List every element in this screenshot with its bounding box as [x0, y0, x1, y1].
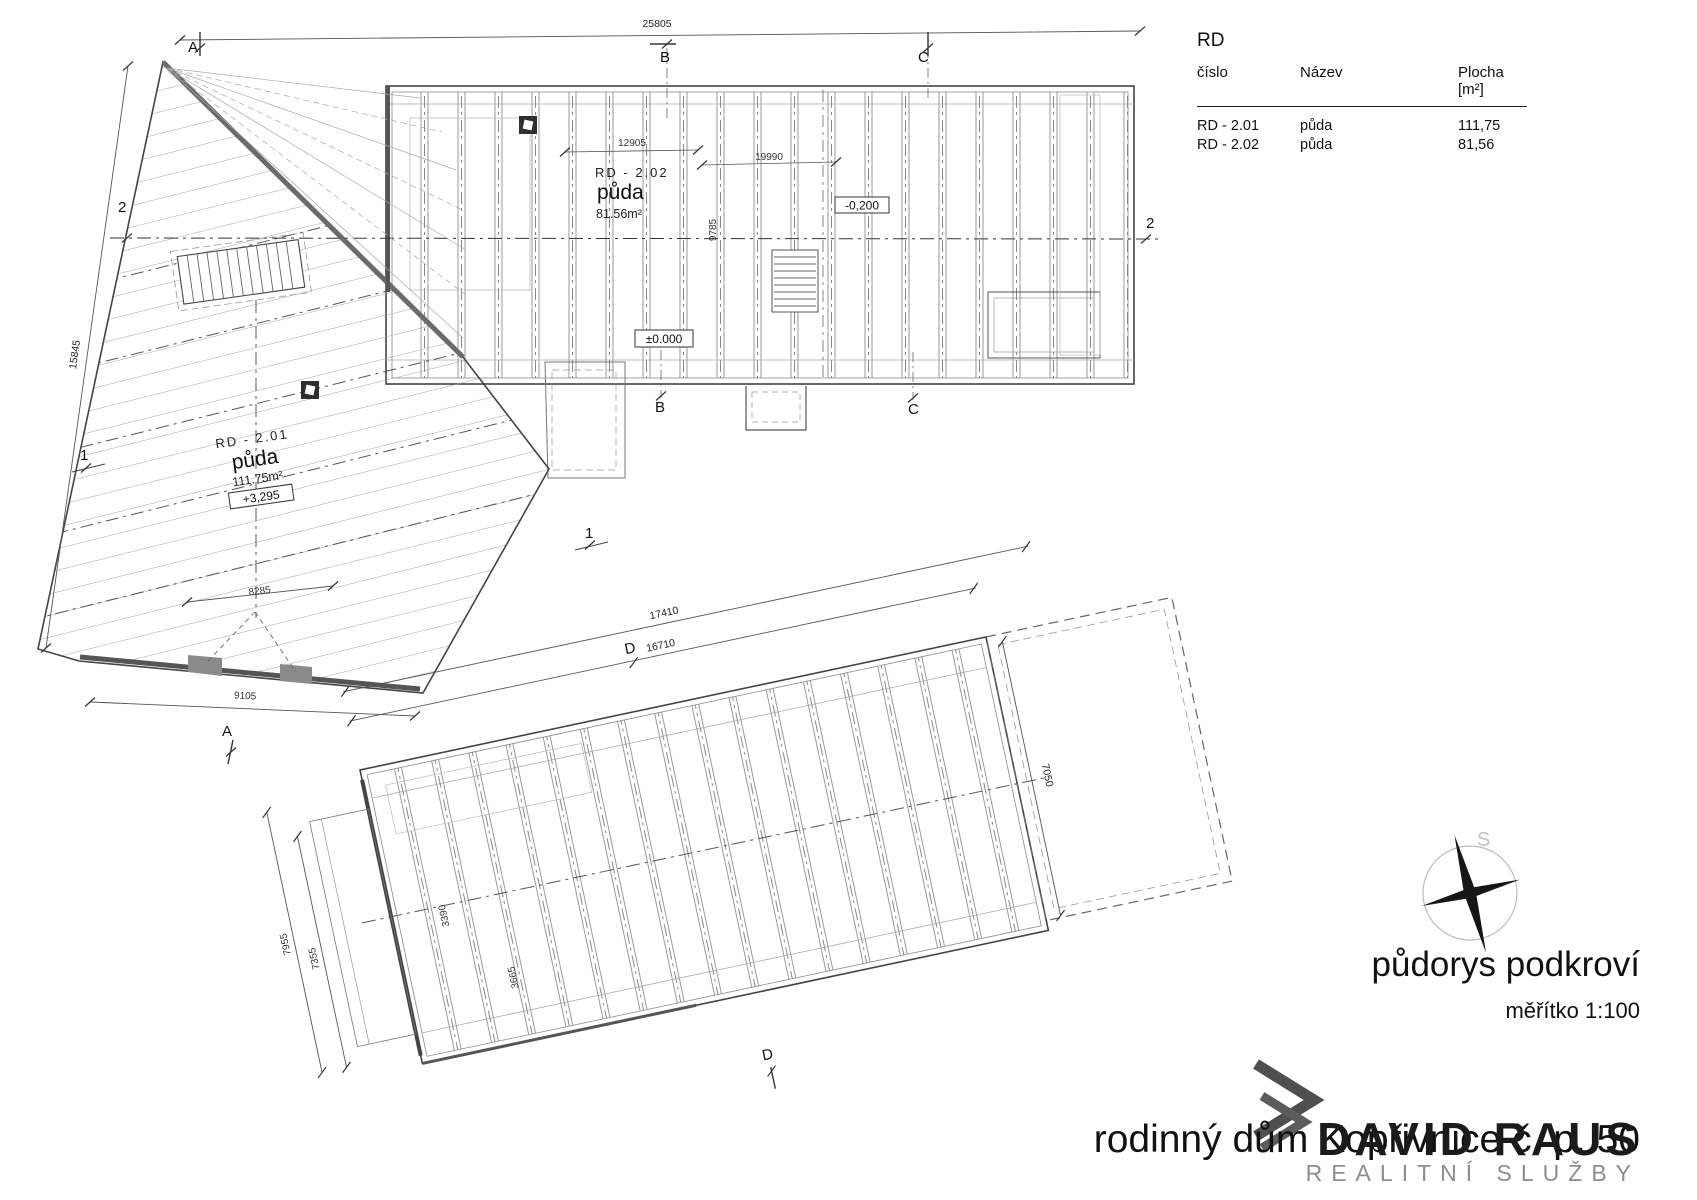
- section-marker-1-left: 1: [80, 447, 88, 464]
- connector-outline: [545, 362, 625, 478]
- section-marker-2-right: 2: [1146, 215, 1154, 232]
- legend-divider: [1197, 106, 1527, 107]
- section-marker-a-top: A: [188, 39, 198, 56]
- svg-text:81.56m²: 81.56m²: [596, 207, 642, 221]
- section-marker-b-bottom: B: [655, 399, 665, 416]
- dim-label-9785: 9785: [708, 218, 719, 241]
- row-plocha: 81,56: [1458, 136, 1527, 155]
- compass-north-label: S: [1477, 829, 1490, 851]
- col-header-plocha: Plocha [m²]: [1458, 64, 1527, 98]
- bay-outline: [746, 386, 806, 430]
- dim-label-7955: 7955: [278, 932, 293, 956]
- section-marker-d-bottom: D: [761, 1046, 775, 1065]
- dim-label-16710: 16710: [645, 637, 676, 655]
- chimney-icon: [519, 116, 537, 134]
- svg-text:-0,200: -0,200: [845, 199, 879, 213]
- drawing-scale: měřítko 1:100: [1505, 998, 1640, 1024]
- chimney-icon: [301, 381, 319, 399]
- dormer-block: [188, 655, 222, 676]
- section-marker-c-bottom: C: [908, 401, 919, 418]
- level-label-zero: ±0.000: [635, 330, 693, 347]
- svg-text:půda: půda: [597, 181, 644, 204]
- row-plocha: 111,75: [1458, 117, 1527, 136]
- section-marker-a-bottom: A: [222, 723, 232, 740]
- drawing-title: půdorys podkroví: [1372, 945, 1640, 985]
- dim-line-7355: [297, 836, 346, 1067]
- table-row: RD - 2.01 půda 111,75: [1197, 117, 1527, 136]
- floor-plan-drawing: 25805 12905 19990 9785 15845 8285 9105 A…: [0, 0, 1697, 1200]
- dim-label-left: 15845: [67, 339, 83, 370]
- watermark-logo-name: DAVID RAUS: [1317, 1112, 1640, 1166]
- joist-hatch-lower: [367, 644, 1041, 1056]
- section-marker-b-top: B: [660, 49, 670, 66]
- dim-line-9105: [90, 702, 415, 716]
- col-header-nazev: Název: [1300, 64, 1458, 98]
- dormer-block: [280, 664, 312, 684]
- dim-label-12905: 12905: [618, 138, 646, 149]
- section-marker-d-top: D: [623, 639, 637, 658]
- level-label-minus200: -0,200: [835, 197, 889, 213]
- joist-hatch-right-wing: [392, 92, 1128, 378]
- row-nazev: půda: [1300, 117, 1458, 136]
- section-marker-2-left: 2: [118, 199, 126, 216]
- dim-label-7050: 7050: [1039, 763, 1056, 788]
- section-marker-1-mid: 1: [585, 525, 593, 542]
- svg-text:RD - 2.02: RD - 2.02: [595, 165, 669, 180]
- row-nazev: půda: [1300, 136, 1458, 155]
- staircase-right-wing: [772, 250, 818, 312]
- col-header-cislo: číslo: [1197, 64, 1300, 98]
- table-row: RD - 2.02 půda 81,56: [1197, 136, 1527, 155]
- dim-line-total: [180, 31, 1140, 40]
- dim-label-total: 25805: [642, 18, 671, 30]
- row-cislo: RD - 2.02: [1197, 136, 1300, 155]
- svg-text:±0.000: ±0.000: [646, 332, 683, 346]
- dim-line-7955: [267, 812, 322, 1072]
- dim-label-7355: 7355: [307, 946, 322, 970]
- dim-label-19990: 19990: [755, 152, 783, 163]
- watermark-logo-subtitle: REALITNÍ SLUŽBY: [1306, 1160, 1640, 1187]
- row-cislo: RD - 2.01: [1197, 117, 1300, 136]
- legend-header-row: číslo Název Plocha [m²]: [1197, 64, 1527, 98]
- dim-label-17410: 17410: [649, 604, 680, 622]
- legend-title: RD: [1197, 30, 1527, 52]
- room-legend-table: RD číslo Název Plocha [m²] RD - 2.01 půd…: [1197, 30, 1527, 154]
- upper-floor-plan: 25805 12905 19990 9785 15845 8285 9105 A…: [30, 18, 1162, 764]
- dim-label-9105: 9105: [234, 690, 257, 702]
- drawing-sheet: 25805 12905 19990 9785 15845 8285 9105 A…: [0, 0, 1697, 1200]
